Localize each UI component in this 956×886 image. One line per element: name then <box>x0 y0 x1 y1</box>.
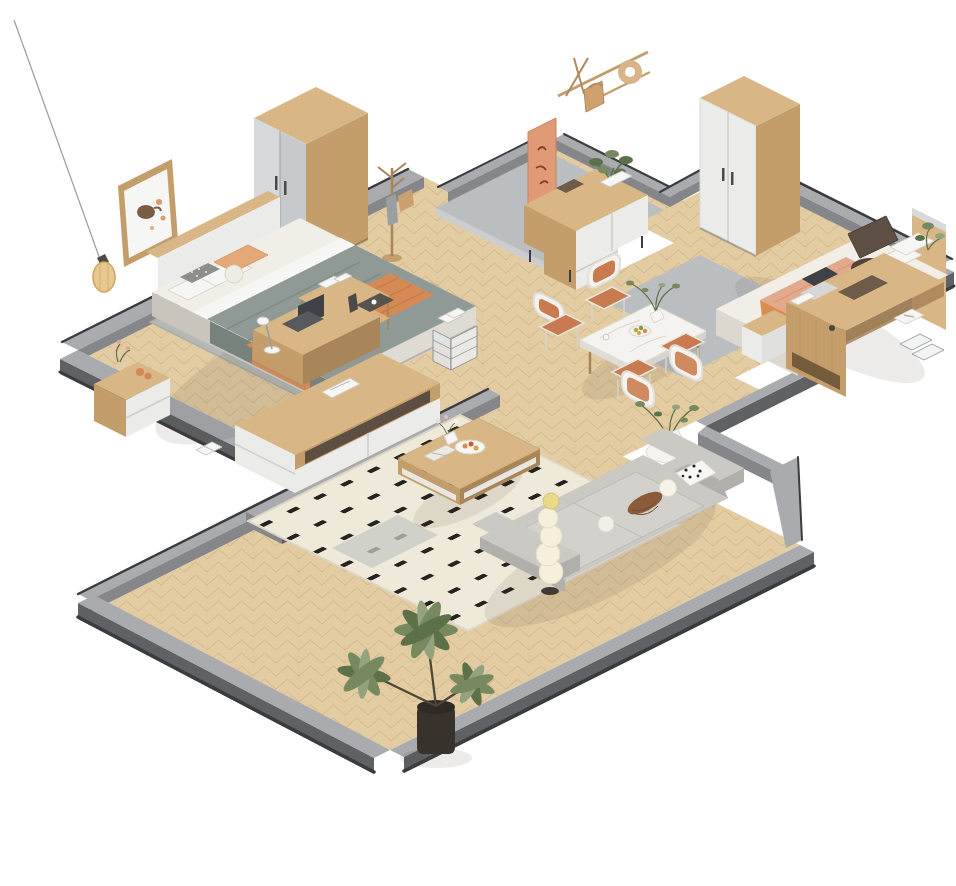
pendant-lamp <box>14 20 115 292</box>
wardrobe-handle-icon <box>722 168 725 181</box>
wardrobe-handle-icon <box>731 172 734 185</box>
hanging-cloth <box>386 194 398 226</box>
desk-knob <box>829 325 835 331</box>
pillow-bolster <box>225 265 243 283</box>
cup-icon <box>603 334 609 340</box>
round-pillow <box>598 516 614 532</box>
pom-pillow <box>660 480 677 497</box>
two-door-wardrobe <box>700 76 800 256</box>
wall-hooks <box>558 52 650 112</box>
apartment-render <box>0 0 956 886</box>
teapot-art-icon <box>137 205 155 219</box>
wardrobe-handle-icon <box>284 181 287 195</box>
isometric-apartment-svg <box>0 0 956 886</box>
wardrobe-handle-icon <box>275 176 278 190</box>
